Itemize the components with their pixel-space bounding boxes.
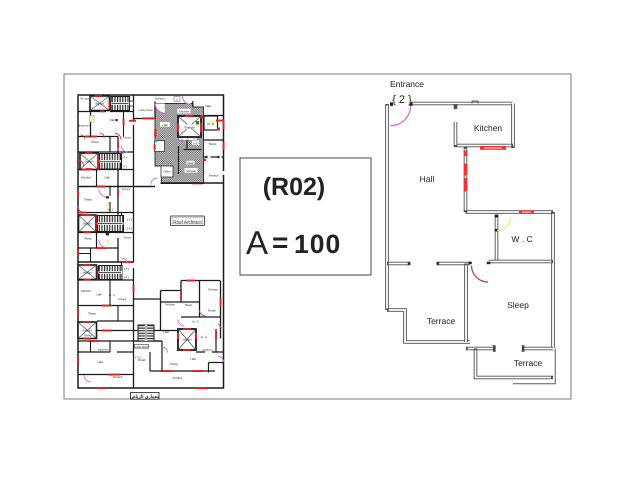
- svg-text:Terrace: Terrace: [186, 169, 196, 173]
- svg-text:Skylight: Skylight: [84, 160, 93, 163]
- svg-text:Sleep: Sleep: [84, 334, 92, 338]
- svg-text:Terrace: Terrace: [112, 375, 122, 379]
- svg-text:Skylight: Skylight: [95, 102, 104, 105]
- svg-text:[ ]: [ ]: [187, 138, 189, 141]
- svg-text:Hall: Hall: [190, 357, 196, 361]
- svg-text:Terrace: Terrace: [427, 316, 456, 326]
- svg-text:100: 100: [294, 229, 341, 259]
- svg-text:{ 4 }: { 4 }: [121, 156, 126, 160]
- svg-text:Terrace: Terrace: [172, 376, 182, 380]
- svg-text:Bathroom: Bathroom: [98, 349, 109, 352]
- svg-text:Kitchen: Kitchen: [81, 289, 91, 293]
- svg-text:Lobby Sheet: Lobby Sheet: [135, 346, 149, 349]
- svg-text:Terrace: Terrace: [514, 358, 543, 368]
- svg-text:Hall: Hall: [104, 176, 110, 180]
- svg-text:{ 4 }: { 4 }: [121, 165, 126, 169]
- svg-text:{ 3 }: { 3 }: [135, 356, 140, 360]
- svg-text:Skylight: Skylight: [83, 272, 92, 275]
- svg-text:(R02): (R02): [263, 173, 326, 201]
- svg-text:Sleep: Sleep: [91, 140, 99, 144]
- svg-text:{ 4 }: { 4 }: [124, 267, 129, 271]
- svg-text:Kitchen: Kitchen: [474, 123, 503, 133]
- svg-text:Skylight: Skylight: [182, 339, 191, 342]
- svg-text:W . C: W . C: [207, 122, 214, 126]
- svg-text:Skylight: Skylight: [83, 330, 92, 333]
- svg-text:[ ]: [ ]: [193, 138, 195, 141]
- svg-text:Room: Room: [208, 309, 217, 313]
- svg-text:Terrace: Terrace: [123, 237, 132, 240]
- svg-text:{ 4 }: { 4 }: [124, 275, 129, 279]
- svg-text:{ 4 }: { 4 }: [127, 227, 132, 231]
- svg-text:Kitchen: Kitchen: [202, 348, 212, 352]
- svg-text:Terrace: Terrace: [123, 137, 132, 140]
- svg-text:Kitchen: Kitchen: [81, 176, 91, 180]
- svg-text:Sleep: Sleep: [88, 312, 96, 316]
- svg-text:Entrance: Entrance: [390, 79, 424, 89]
- svg-text:{ 2 }: { 2 }: [392, 94, 412, 106]
- svg-text:Sleep: Sleep: [185, 303, 193, 307]
- svg-text:Terrace: Terrace: [122, 188, 131, 191]
- svg-text:Sleep: Sleep: [209, 142, 217, 146]
- svg-text:Sleep: Sleep: [84, 237, 92, 241]
- svg-text:Hall: Hall: [96, 293, 102, 297]
- svg-text:Skylight: Skylight: [184, 125, 195, 129]
- svg-text:Hall: Hall: [205, 104, 211, 108]
- svg-text:=: =: [272, 227, 288, 258]
- svg-text:Lobby Sheet: Lobby Sheet: [138, 109, 153, 112]
- svg-text:Sleep: Sleep: [84, 198, 92, 202]
- svg-text:Terrace: Terrace: [118, 298, 127, 301]
- svg-text:Hall: Hall: [109, 118, 115, 122]
- svg-text:W . C: W . C: [511, 234, 532, 244]
- svg-text:Kitchen: Kitchen: [179, 110, 189, 114]
- svg-text:Sleep: Sleep: [187, 162, 194, 165]
- svg-text:Office: Office: [164, 171, 171, 174]
- svg-text:W . C: W . C: [192, 321, 199, 324]
- svg-text:W.C: W.C: [193, 142, 198, 145]
- svg-text:Roof Architect: Roof Architect: [173, 220, 202, 225]
- svg-text:Terrace: Terrace: [208, 174, 218, 178]
- svg-text:W . C: W . C: [109, 294, 116, 297]
- svg-text:W . C: W . C: [201, 336, 208, 339]
- svg-text:{ 4 }: { 4 }: [127, 218, 132, 222]
- svg-text:Sleep: Sleep: [507, 300, 529, 310]
- svg-text:Hall: Hall: [420, 174, 435, 184]
- svg-text:A: A: [246, 224, 268, 261]
- svg-text:Terrace: Terrace: [165, 303, 175, 307]
- svg-text:Entrance: Entrance: [155, 97, 166, 100]
- svg-text:Skylight: Skylight: [82, 223, 91, 226]
- svg-text:Hall: Hall: [162, 123, 168, 127]
- svg-text:Hall: Hall: [163, 330, 169, 334]
- svg-text:Sleep: Sleep: [170, 362, 178, 366]
- svg-text:Ter race: Ter race: [80, 98, 90, 101]
- svg-text:Terrace: Terrace: [208, 288, 218, 292]
- svg-text:[ ]: [ ]: [181, 138, 183, 141]
- svg-text:Hall: Hall: [97, 360, 103, 364]
- svg-text:W . C: W . C: [107, 209, 114, 212]
- svg-text:Bathroom: Bathroom: [79, 125, 90, 128]
